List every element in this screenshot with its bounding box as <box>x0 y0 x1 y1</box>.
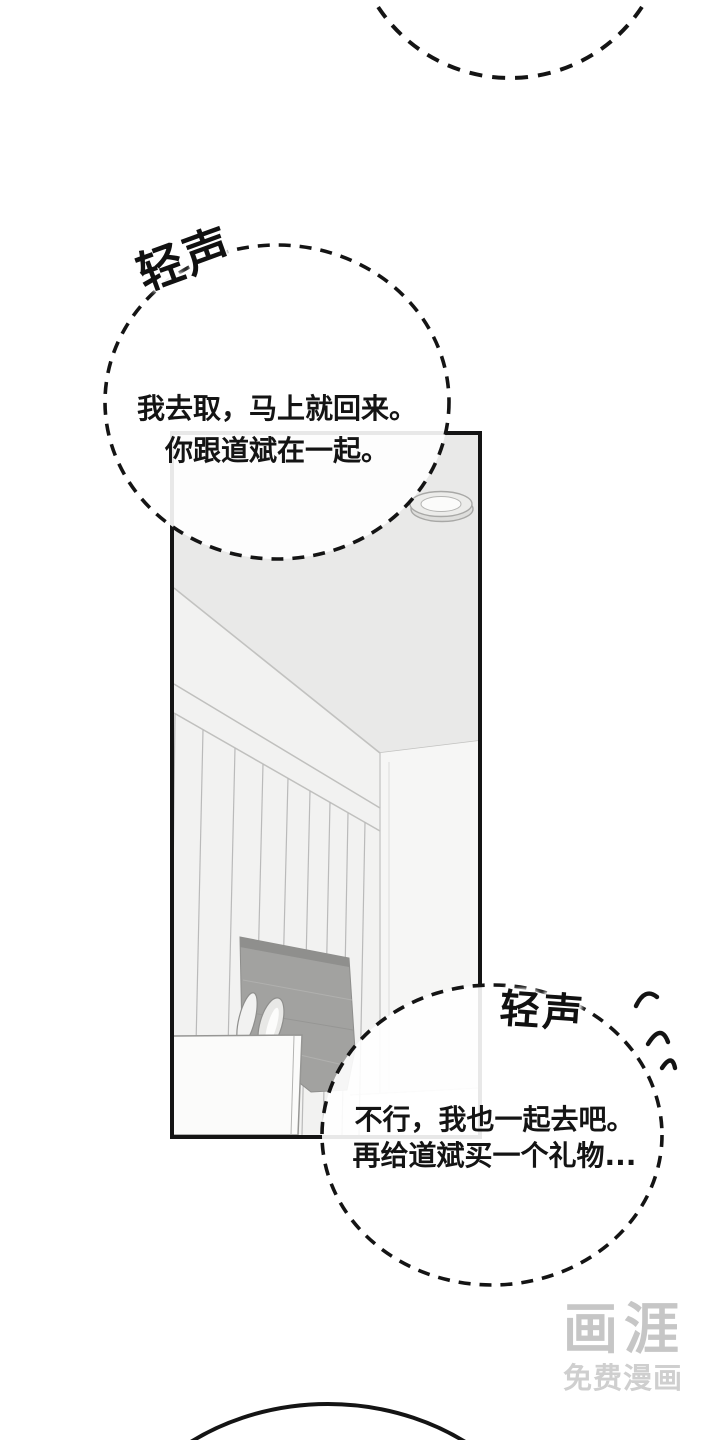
bubble-1-text: 我去取，马上就回来。 你跟道斌在一起。 <box>100 388 454 472</box>
ceiling-light <box>410 492 473 522</box>
comic-page: 轻声 我去取，马上就回来。 你跟道斌在一起。 轻声 不行，我也一起去吧。 再给道… <box>0 0 720 1440</box>
watermark-logo: 画涯 <box>563 1300 685 1358</box>
watermark-tagline: 免费漫画 <box>563 1362 685 1394</box>
bubble-2-text: 不行，我也一起去吧。 再给道斌买一个礼物... <box>327 1102 662 1174</box>
bubble-2-line-1: 不行，我也一起去吧。 <box>327 1102 662 1138</box>
comic-artwork <box>0 0 720 1440</box>
top-bubble-partial <box>352 0 668 78</box>
bottom-bubble-partial <box>96 1404 560 1440</box>
whisper-label-2: 轻声 <box>498 976 588 1040</box>
bubble-1-line-1: 我去取，马上就回来。 <box>100 388 454 430</box>
fluster-marks <box>636 994 675 1068</box>
white-cabinet <box>172 1035 302 1135</box>
bubble-2-line-2: 再给道斌买一个礼物... <box>327 1138 662 1174</box>
bubble-1-line-2: 你跟道斌在一起。 <box>100 430 454 472</box>
watermark: 画涯 免费漫画 <box>563 1300 685 1394</box>
